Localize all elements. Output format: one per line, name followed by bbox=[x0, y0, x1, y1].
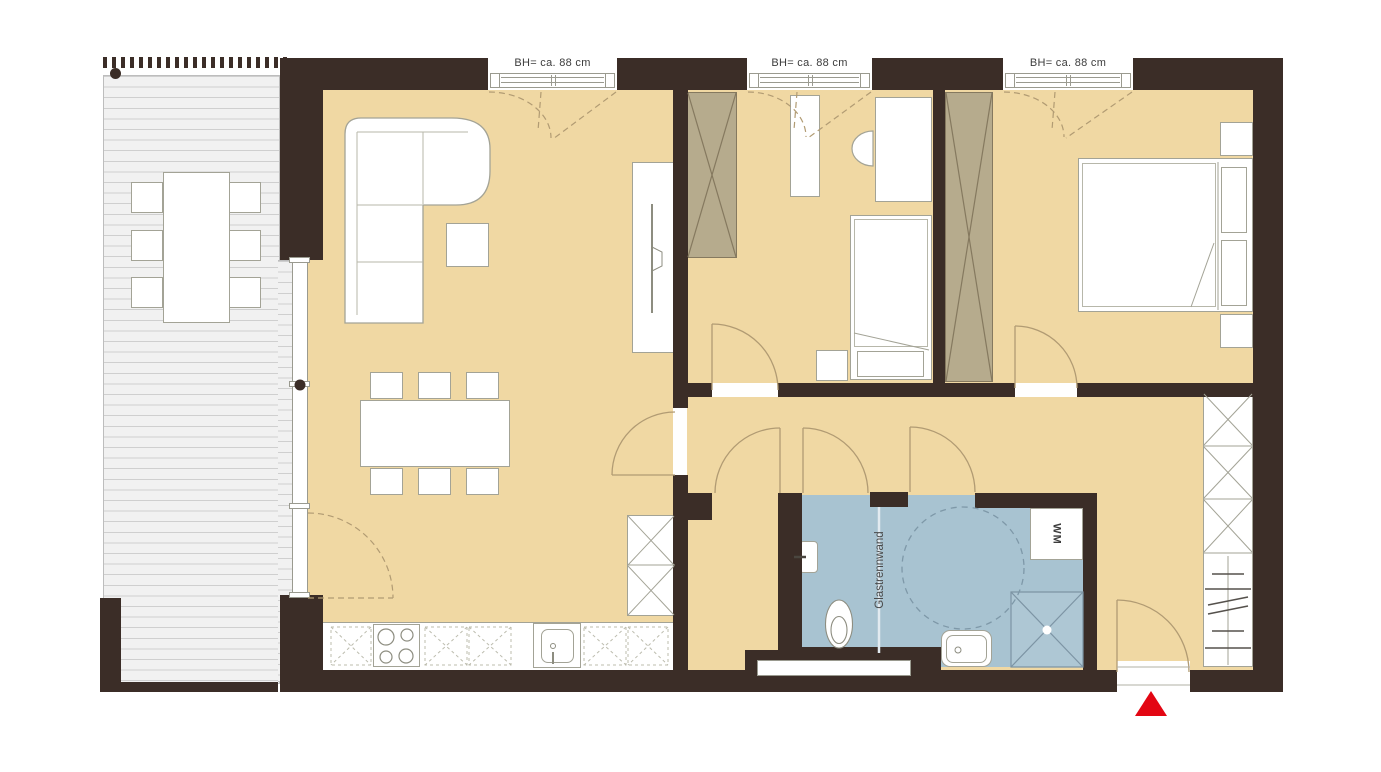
wall bbox=[687, 383, 712, 397]
window-frame bbox=[490, 73, 615, 88]
wall bbox=[1253, 58, 1283, 692]
terrace-chair bbox=[229, 277, 261, 308]
dining-chair bbox=[370, 372, 403, 399]
cooktop bbox=[373, 624, 420, 667]
living-room-floor bbox=[306, 260, 326, 598]
floor-plan: WM BH= ca. 88 cm BH= ca. 88 cm BH= ca. 8… bbox=[0, 0, 1381, 772]
nightstand-bedroom-1 bbox=[816, 350, 848, 381]
boundary-point-marker bbox=[110, 68, 121, 79]
glass-wall-terrace bbox=[292, 260, 308, 598]
nightstand-bedroom-2 bbox=[1220, 122, 1253, 156]
dining-chair bbox=[418, 372, 451, 399]
terrace-table bbox=[163, 172, 230, 323]
tall-cabinet bbox=[627, 515, 675, 616]
shelf-bedroom-1 bbox=[790, 95, 820, 197]
double-bed-mattress bbox=[1082, 163, 1216, 307]
glass-partition-label: Glastrennwand bbox=[874, 510, 888, 630]
tv-sideboard bbox=[632, 162, 677, 353]
dining-chair bbox=[418, 468, 451, 495]
double-bed-pillow bbox=[1221, 240, 1247, 306]
window-1-height-label: BH= ca. 88 cm bbox=[488, 57, 617, 69]
dining-chair bbox=[466, 372, 499, 399]
double-bed-pillow bbox=[1221, 167, 1247, 233]
terrace-chair bbox=[229, 230, 261, 261]
wall bbox=[870, 492, 908, 507]
window-frame bbox=[749, 73, 870, 88]
terrace-boundary-hatching bbox=[103, 57, 288, 68]
wall bbox=[778, 493, 802, 662]
terrace-chair bbox=[131, 230, 163, 261]
terrace-chair bbox=[131, 182, 163, 213]
terrace-decking bbox=[103, 75, 280, 684]
wall bbox=[280, 595, 323, 692]
terrace-chair bbox=[229, 182, 261, 213]
entry-closet bbox=[1203, 393, 1253, 667]
wall bbox=[933, 90, 945, 383]
glass-wall-jamb bbox=[289, 592, 310, 598]
wall bbox=[778, 383, 1015, 397]
wall bbox=[280, 670, 1117, 692]
wall bbox=[673, 90, 688, 408]
wall bbox=[100, 598, 121, 692]
wall bbox=[1077, 383, 1253, 397]
window-2: BH= ca. 88 cm bbox=[747, 56, 872, 90]
window-1: BH= ca. 88 cm bbox=[488, 56, 617, 90]
wall bbox=[686, 493, 712, 520]
wall bbox=[1190, 670, 1283, 692]
wall bbox=[103, 682, 278, 692]
desk-bedroom-1 bbox=[875, 97, 932, 202]
wall bbox=[617, 58, 747, 90]
dining-chair bbox=[466, 468, 499, 495]
wall bbox=[975, 493, 1083, 508]
coffee-table bbox=[446, 223, 489, 267]
washbasin-basin bbox=[946, 635, 987, 663]
kitchen-sink-basin bbox=[541, 629, 574, 663]
glass-wall-jamb bbox=[289, 257, 310, 263]
terrace-chair bbox=[131, 277, 163, 308]
window-frame bbox=[1005, 73, 1131, 88]
wall bbox=[872, 58, 1003, 90]
entrance-arrow-icon bbox=[1135, 691, 1167, 716]
wardrobe-bedroom-1 bbox=[687, 92, 737, 258]
glass-wall-jamb bbox=[289, 503, 310, 509]
washing-machine: WM bbox=[1030, 508, 1083, 560]
window-3-height-label: BH= ca. 88 cm bbox=[1003, 57, 1133, 69]
wall bbox=[280, 58, 323, 260]
wall bbox=[1083, 493, 1097, 692]
dining-chair bbox=[370, 468, 403, 495]
window-3: BH= ca. 88 cm bbox=[1003, 56, 1133, 90]
dining-table bbox=[360, 400, 510, 467]
nightstand-bedroom-2 bbox=[1220, 314, 1253, 348]
single-bed-pillow bbox=[857, 351, 924, 377]
washing-machine-label: WM bbox=[1051, 523, 1063, 545]
window-2-height-label: BH= ca. 88 cm bbox=[747, 57, 872, 69]
single-bed-mattress bbox=[854, 219, 928, 347]
entrance-door-sill bbox=[1117, 661, 1190, 688]
wall-niche bbox=[757, 660, 911, 676]
glass-wall-jamb bbox=[289, 381, 310, 387]
wardrobe-bedroom-2 bbox=[945, 92, 993, 382]
